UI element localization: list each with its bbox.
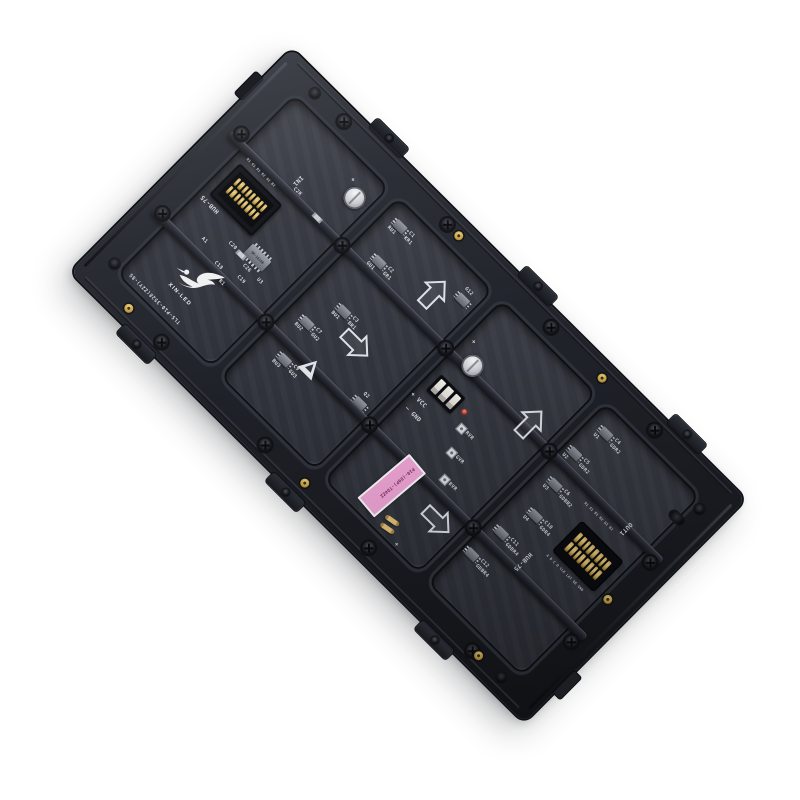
component-group: U3 C6GDBR2 [545,477,578,510]
connector-pins [564,532,612,580]
frame-tab [235,72,263,100]
ic-chip [494,526,510,542]
ear-hole [682,429,692,439]
ear-hole [533,281,543,291]
ic-chip: U4 [528,508,544,524]
polarity-mark: + [469,339,477,347]
frame-hole [494,670,508,684]
ic-chip: GU1 [371,254,387,270]
polarity-mark: + [408,391,416,399]
ear-hole [132,339,142,349]
brass-insert [596,372,609,385]
frame-hole [308,86,322,100]
frame-hole [107,257,121,271]
polarity-mark: + [348,177,356,185]
brass-insert [298,477,311,490]
electrolytic-capacitor [457,350,488,381]
part-label: C19 [235,275,246,286]
component-group: U4 C10GDR4 [525,508,555,538]
component-group: RU1 C1KR1 [390,219,418,247]
polarity-mark: + [392,541,400,549]
ic-chip: U3 [547,477,563,493]
ic-designator: BU1 [329,310,340,321]
ic-chip: U1 [598,426,614,442]
ic-chip: RU1 [392,219,408,235]
brass-insert [601,593,614,606]
vcc-label: VCC [414,397,427,410]
input-port-label: IN1 [291,173,304,186]
arrow-right-icon [333,321,380,368]
electrolytic-capacitor [339,182,370,213]
part-label: U3 [255,277,264,286]
gnd-label: GND [409,411,422,424]
ear-hole [281,487,291,497]
arrow-up-icon [507,400,554,447]
ear-hole [430,635,440,645]
component-group: BU2 C7GU2 [297,315,325,343]
ic-designator: U1 [591,433,600,442]
frame-hole [692,502,706,516]
ic-designator: U4 [521,515,530,524]
trimmer-label: RVR [463,431,474,442]
brass-insert [452,229,465,242]
arrow-up-icon [410,270,457,317]
frame-tab [553,671,581,699]
product-photo: + IN1 R1 G1 B1 R2 G2 B2 HUB-75 SM-16188 … [0,0,800,800]
part-label: Q2 [361,392,370,401]
spec-sticker-text: P10-(89P)-TD4ZZ [378,466,415,498]
part-label: C20 [226,241,237,252]
ear-hole [384,133,394,143]
ic-designator: RU1 [385,225,396,236]
brass-insert [122,302,135,315]
ic-designator: U3 [540,484,549,493]
indicator-led [461,408,468,415]
ic-chip: U2 [567,446,583,462]
ic-chip: BU3 [277,352,293,368]
part-label: A1 [199,237,208,246]
ic-chip: BU1 [336,304,352,320]
component-group: C12GDBR4 [462,547,495,580]
ic-chip [464,547,480,563]
trimmer-label: BVR [446,482,457,493]
component-group: U1 C4GDR2 [596,426,626,456]
spec-sticker: P10-(89P)-TD4ZZ [357,454,426,518]
ic-designator: BU2 [292,322,303,333]
ic-designator: BU3 [270,359,281,370]
ic-chip: BU2 [299,315,315,331]
dip-switch [426,374,466,414]
trimmer-label: GVR [453,455,464,466]
led-module-back: + IN1 R1 G1 B1 R2 G2 B2 HUB-75 SM-16188 … [70,48,746,722]
polarity-mark: − [403,406,411,414]
